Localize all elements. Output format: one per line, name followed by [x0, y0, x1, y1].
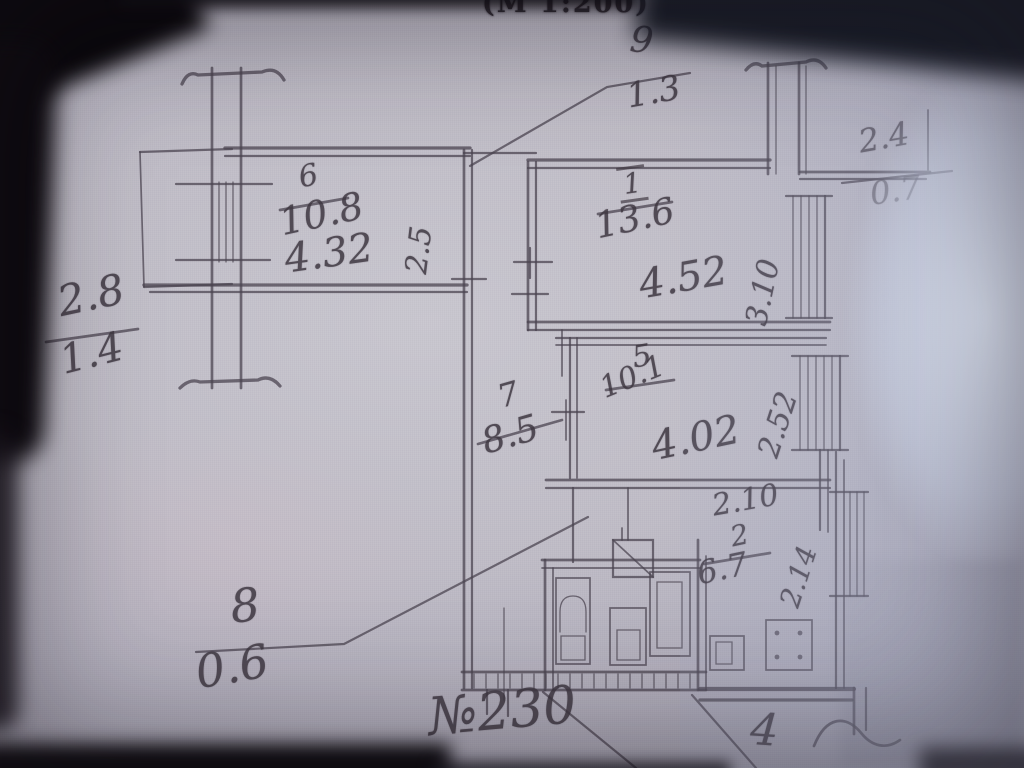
squiggle-mark	[814, 721, 900, 746]
bathtub-symbol	[556, 578, 590, 664]
balcony-right-area: 0.7	[868, 171, 923, 210]
bath8-number: 8	[228, 581, 262, 630]
floor-plan-photo: (М 1:200) 9 1.3 6 10.8 4.32 2.5 1 13.6 4…	[0, 0, 1024, 768]
stove-symbol	[766, 620, 812, 670]
room6-depth-dimension: 2.5	[402, 225, 438, 276]
toilet-symbol	[610, 608, 646, 665]
bath-door-symbol	[650, 572, 690, 656]
room9-number: 9	[628, 22, 655, 60]
bath8-area: 0.6	[192, 637, 272, 695]
scale-note: (М 1:200)	[482, 0, 650, 17]
kitchen2-area: 6.7	[694, 547, 750, 589]
sink-symbol	[710, 636, 744, 670]
room6-width-dimension: 4.32	[282, 228, 376, 280]
plan-number: №230	[426, 679, 578, 744]
room9-area: 1.3	[624, 71, 683, 114]
corner-mark: 4	[749, 708, 780, 754]
balcony-right-number: 2.4	[856, 117, 912, 157]
window-symbols	[176, 60, 868, 596]
